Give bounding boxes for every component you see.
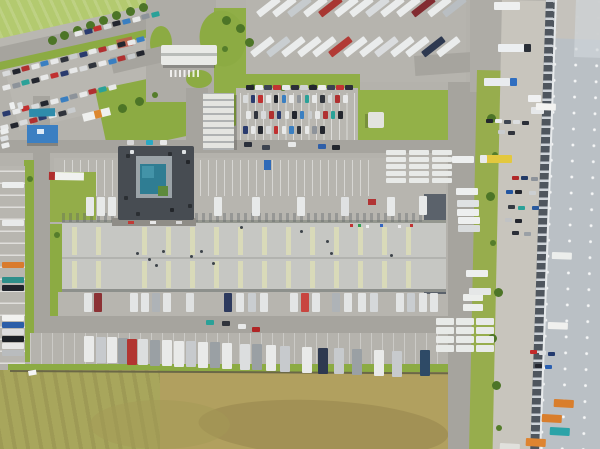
mid-carpark-row-a-item (320, 95, 325, 103)
south-dock-trailers-item (186, 293, 194, 312)
office-roof-units-item (130, 150, 134, 154)
trees-large-item (245, 38, 254, 47)
apron-cars-item (498, 130, 505, 134)
south-dock-trailers-item (130, 293, 138, 312)
trees-large-item (126, 7, 135, 16)
right-roof-glare (574, 0, 600, 58)
apron-cars-item (486, 119, 493, 123)
containers-north-item (386, 157, 406, 162)
skylight-strips-north-item (334, 227, 339, 255)
field-mottle (90, 400, 230, 449)
containers-south-pair-item (463, 294, 483, 301)
trees-large-item (494, 288, 503, 297)
skylight-strips-south-item (142, 261, 147, 288)
trees-small-item (54, 232, 60, 238)
mid-carpark-row-a-item (266, 95, 271, 103)
east-road-trailers-item (458, 225, 480, 232)
office-roof-garden (158, 186, 168, 196)
mid-carpark-row-b-item (269, 111, 274, 119)
mid-north-cars-item (246, 85, 254, 90)
warehouse-roof-seam (62, 257, 446, 259)
trees-large-item (48, 36, 57, 45)
south-dock-trailers-item (248, 293, 256, 312)
mid-north-cars-item (327, 85, 335, 90)
mid-carpark-row-b-item (308, 111, 313, 119)
mid-carpark-row-b-item (277, 111, 282, 119)
apron-cars-item (539, 351, 546, 355)
apron-trucks-item (498, 44, 524, 52)
apron-cars-item (508, 205, 515, 209)
skylight-strips-south-item (262, 261, 267, 288)
left-bay-trucks-item (2, 262, 24, 268)
south-trailer-row-item (186, 341, 196, 367)
skylight-strips-north-item (214, 227, 219, 255)
gatehouse-canopy (161, 45, 217, 65)
south-trailer-row-item (222, 343, 232, 369)
south-dock-trailers-item (396, 293, 404, 312)
south-dock-trailers-item (370, 293, 378, 312)
mid-north-cars-item (345, 85, 353, 90)
white-hut-shadow (365, 114, 368, 128)
skylight-strips-south-item (334, 261, 339, 288)
skylight-strips-north-item (96, 227, 101, 255)
roof-vents-item (390, 254, 393, 257)
pallet-dots-item (350, 224, 353, 227)
trees-small-item (27, 176, 33, 182)
east-docked-color-trucks-item (500, 443, 520, 449)
apron-truck-cabs-item (480, 155, 487, 163)
skylight-strips-north-item (382, 227, 387, 255)
mid-carpark-row-c-item (305, 126, 310, 134)
south-dock-trailers-item (224, 293, 232, 312)
apron-cars-item (505, 218, 512, 222)
south-dock-trailers-item (332, 293, 340, 312)
yard-road-vans-item (288, 142, 296, 147)
north-dock-trailers-item (97, 197, 105, 216)
aerial-photo-logistics-center (0, 0, 600, 449)
apron-cars-item (531, 177, 538, 181)
roof-vents-item (162, 250, 165, 253)
apron-truck-cabs-item (510, 78, 517, 86)
gatehouse-center-line (161, 53, 217, 56)
mid-carpark-row-b-item (323, 111, 328, 119)
apron-cars-item (545, 365, 552, 369)
apron-cars-item (518, 206, 525, 210)
containers-north-item (409, 164, 429, 169)
crosswalk (170, 70, 200, 77)
south-trailer-row-item (302, 347, 312, 373)
east-docked-color-trucks-item (554, 399, 574, 408)
skylight-strips-north-item (166, 227, 171, 255)
skylight-strips-north-item (72, 227, 77, 255)
south-trailer-row-item (420, 350, 430, 376)
yard-road-vans-item (262, 145, 270, 150)
containers-north-item (432, 178, 452, 183)
blue-canopy-shadow (27, 143, 58, 146)
mid-north-cars-item (336, 85, 344, 90)
trees-large-item (139, 3, 148, 12)
apron-cars-item (506, 190, 513, 194)
roof-vents-item (240, 226, 243, 229)
apron-cars-item (495, 119, 502, 123)
north-dock-trailers-item (108, 197, 116, 216)
mid-north-cars-item (255, 85, 263, 90)
mid-carpark-row-a-item (282, 95, 287, 103)
apron-cars-item (515, 219, 522, 223)
south-trailer-row-item (138, 339, 148, 365)
containers-south-item (476, 345, 494, 352)
skylight-strips-north-item (190, 227, 195, 255)
trees-large-item (486, 192, 495, 201)
containers-south-item (456, 336, 474, 343)
north-yard-bay-lines (64, 160, 376, 196)
south-dock-trailers-item (152, 293, 160, 312)
left-bay-trucks-item (2, 315, 24, 321)
skylight-strips-south-item (382, 261, 387, 288)
apron-trucks-item (484, 78, 510, 86)
south-trailer-row-item (266, 345, 276, 371)
roof-vents-item (330, 252, 333, 255)
apron-cars-item (515, 190, 522, 194)
mid-carpark-row-c-item (243, 126, 248, 134)
mid-carpark-row-a-item (258, 95, 263, 103)
north-dock-trailers-item (252, 197, 260, 216)
yard-road-vans-item (318, 144, 326, 149)
apron-trucks-item (494, 2, 520, 10)
mid-north-cars-item (291, 85, 299, 90)
skylight-strips-south-item (238, 261, 243, 288)
office-roof-units-item (168, 152, 172, 156)
containers-south-item (436, 336, 454, 343)
south-dock-trailers-item (260, 293, 268, 312)
containers-south-item (456, 345, 474, 352)
south-trailer-row-item (334, 348, 344, 374)
mid-carpark-row-c-item (251, 126, 256, 134)
south-trailer-row-item (252, 344, 262, 370)
trees-large-item (236, 24, 245, 33)
left-bay-trucks-item (2, 350, 24, 356)
west-road-truck-cab (49, 172, 55, 180)
containers-south-item (436, 318, 454, 325)
south-trailer-row-item (127, 339, 137, 365)
pallet-dots-item (398, 225, 401, 228)
south-trailer-row-item (374, 350, 384, 376)
south-dock-trailers-item (84, 293, 92, 312)
trees-large-item (60, 31, 69, 40)
apron-truck-cabs-item (524, 44, 531, 52)
east-docked-color-trucks-item (550, 427, 570, 436)
south-dock-trailers-item (94, 293, 102, 312)
south-trailer-row-item (107, 337, 117, 363)
carport-canopy (203, 93, 234, 150)
containers-north-item (432, 171, 452, 176)
office-north-units-item (146, 140, 153, 145)
south-dock-trailers-item (344, 293, 352, 312)
trees-large-item (135, 97, 144, 106)
south-trailer-row-item (210, 342, 220, 368)
containers-north-item (432, 164, 452, 169)
red-truck-north-dock (368, 199, 376, 205)
south-dock-trailers-item (358, 293, 366, 312)
south-dock-trailers-item (236, 293, 244, 312)
apron-cars-item (522, 121, 529, 125)
east-road-trailers-item (456, 188, 478, 195)
south-trailer-row-item (162, 340, 172, 366)
roof-vents-item (212, 262, 215, 265)
office-roof-units-item (182, 150, 186, 154)
office-roof-units-item (188, 204, 192, 208)
plaza-items-item (150, 221, 156, 224)
south-trailer-row-item (174, 341, 184, 367)
north-dock-trailers-item (214, 197, 222, 216)
east-docked-color-trucks-item (542, 414, 562, 423)
mid-carpark-row-b-item (315, 111, 320, 119)
containers-south-item (436, 327, 454, 334)
skylight-strips-north-item (238, 227, 243, 255)
apron-trucks-item (486, 155, 512, 163)
north-dock-trailers-item (419, 196, 427, 215)
skylight-strips-north-item (358, 227, 363, 255)
mid-north-cars-item (300, 85, 308, 90)
yard-road-vans-item (244, 142, 252, 147)
south-dock-trailers-item (163, 293, 171, 312)
containers-north-item (386, 164, 406, 169)
apron-cars-item (521, 176, 528, 180)
mid-carpark-row-b-item (254, 111, 259, 119)
skylight-strips-south-item (286, 261, 291, 288)
containers-north-item (386, 150, 406, 155)
south-dock-trailers-item (290, 293, 298, 312)
trees-large-item (222, 16, 231, 25)
containers-south-item (456, 327, 474, 334)
north-dock-trailers-item (387, 197, 395, 216)
trees-small-item (490, 240, 496, 246)
mid-north-cars-item (309, 85, 317, 90)
apron-vans-item (528, 95, 541, 102)
south-dock-trailers-item (430, 293, 438, 312)
mid-carpark-row-c-item (282, 126, 287, 134)
left-bay-trucks-item (2, 336, 24, 342)
south-trailer-row-item (318, 348, 328, 374)
roof-vents-item (200, 250, 203, 253)
apron-cars-item (529, 191, 536, 195)
blue-box-truck (264, 160, 271, 170)
skylight-strips-south-item (72, 261, 77, 288)
roof-vents-item (148, 258, 151, 261)
skylight-strips-south-item (358, 261, 363, 288)
pallet-dots-item (380, 224, 383, 227)
mid-carpark-row-c-item (266, 126, 271, 134)
apron-cars-item (535, 364, 542, 368)
containers-south-item (476, 327, 494, 334)
roof-vents-item (300, 230, 303, 233)
plaza-items-item (176, 221, 182, 224)
east-road-trailers-item (466, 270, 488, 277)
left-bay-trucks-item (2, 220, 24, 226)
skylight-strips-north-item (286, 227, 291, 255)
teal-truck (29, 108, 55, 117)
apron-cars-item (524, 232, 531, 236)
containers-south-item (476, 318, 494, 325)
mid-carpark-row-a-item (274, 95, 279, 103)
office-roof-units-item (186, 160, 190, 164)
skylight-strips-north-item (310, 227, 315, 255)
apron-cars-item (530, 350, 537, 354)
east-road-trailers-item (457, 200, 479, 207)
containers-south-pair-item (463, 304, 483, 311)
south-trailer-row-item (198, 342, 208, 368)
south-road-cars-item (238, 324, 246, 329)
mid-carpark-row-c-item (289, 126, 294, 134)
south-trailer-row-item (392, 351, 402, 377)
containers-north-item (409, 171, 429, 176)
office-roof-units-item (126, 154, 130, 158)
mid-carpark-row-b-item (331, 111, 336, 119)
east-road-trailers-item (458, 217, 480, 224)
containers-north-item (409, 157, 429, 162)
containers-north-item (409, 178, 429, 183)
office-north-units-item (160, 140, 167, 145)
north-dock-trailers-item (297, 197, 305, 216)
south-trailer-row-item (240, 344, 250, 370)
containers-north-item (386, 171, 406, 176)
mid-north-cars-item (282, 85, 290, 90)
warehouse-south-shadow (62, 289, 446, 292)
mid-carpark-row-a-item (312, 95, 317, 103)
apron-cars-item (513, 120, 520, 124)
grass-left-outer (24, 160, 34, 362)
mid-carpark-row-c-item (258, 126, 263, 134)
east-docked-trailers-item (548, 322, 568, 330)
skylight-strips-south-item (310, 261, 315, 288)
left-bay-trucks-item (2, 285, 24, 291)
trees-large-item (492, 381, 501, 390)
south-road-cars-item (222, 321, 230, 326)
warehouse-roof (62, 222, 446, 292)
trees-small-item (152, 92, 158, 98)
west-road-truck (54, 172, 84, 181)
mid-carpark-row-c-item (297, 126, 302, 134)
mid-carpark-row-a-item (251, 95, 256, 103)
north-dock-trailers-item (86, 197, 94, 216)
left-bay-trucks-item (2, 277, 24, 283)
left-bay-trucks-item (2, 343, 24, 349)
containers-south-item (436, 345, 454, 352)
south-dock-trailers-item (141, 293, 149, 312)
office-roof-units-item (136, 212, 140, 216)
pallet-dots-item (358, 224, 361, 227)
south-road-cars-item (252, 327, 260, 332)
mid-carpark-row-a-item (297, 95, 302, 103)
containers-south-item (476, 336, 494, 343)
mid-north-cars-item (264, 85, 272, 90)
gatehouse-shadow (163, 65, 215, 68)
blue-canopy-highlight (37, 129, 44, 134)
roof-vents-item (155, 264, 158, 267)
trees-large-item (118, 104, 127, 113)
containers-north-item (432, 157, 452, 162)
containers-south-item (456, 318, 474, 325)
office-roof-units-item (170, 208, 174, 212)
skylight-strips-south-item (96, 261, 101, 288)
skylight-strips-north-item (262, 227, 267, 255)
mid-carpark-row-c-item (312, 126, 317, 134)
south-dock-trailers-item (301, 293, 309, 312)
skylight-strips-south-item (406, 261, 411, 288)
skylight-strips-south-item (190, 261, 195, 288)
mid-carpark-row-a-item (289, 95, 294, 103)
east-docked-color-trucks-item (526, 438, 546, 447)
left-bay-trucks-item (2, 329, 24, 335)
south-road-cars-item (206, 320, 214, 325)
containers-north-item (409, 150, 429, 155)
south-trailer-row-item (84, 336, 94, 362)
containers-north-item (432, 150, 452, 155)
east-road-trailers-item (457, 209, 479, 216)
east-road-trailers-item (469, 288, 491, 295)
mid-carpark-row-a-item (243, 95, 248, 103)
pallet-dots-item (410, 224, 413, 227)
south-trailer-row-item (96, 337, 106, 363)
white-hut (368, 112, 384, 128)
mid-carpark-row-a-item (305, 95, 310, 103)
skylight-strips-north-item (406, 227, 411, 255)
containers-north-item (386, 178, 406, 183)
office-roof-units-item (124, 196, 128, 200)
mid-carpark-row-b-item (292, 111, 297, 119)
trees-large-item (112, 11, 121, 20)
apron-cars-item (512, 176, 519, 180)
trees-small-item (222, 46, 228, 52)
apron-cars-item (504, 120, 511, 124)
mid-carpark-row-b-item (338, 111, 343, 119)
mid-carpark-row-c-item (320, 126, 325, 134)
apron-cars-item (532, 206, 539, 210)
yard-road-vans-item (332, 145, 340, 150)
roof-vents-item (190, 255, 193, 258)
mid-carpark-row-b-item (285, 111, 290, 119)
mid-carpark-row-a-item (343, 95, 348, 103)
trees-small-item (496, 425, 502, 431)
mid-north-cars-item (273, 85, 281, 90)
south-dock-trailers-item (312, 293, 320, 312)
east-road-trailers-item (452, 156, 474, 163)
plaza-items-item (128, 221, 134, 224)
apron-cars-item (548, 352, 555, 356)
office-north-units-item (127, 140, 134, 145)
mid-carpark-row-b-item (246, 111, 251, 119)
left-bay-trucks-item (2, 322, 24, 328)
nw-drive-truck-tarp (94, 109, 103, 118)
carport-shadow (234, 95, 237, 150)
mid-carpark-row-b-item (300, 111, 305, 119)
office-atrium-highlight (142, 166, 154, 178)
mid-carpark-row-a-item (328, 95, 333, 103)
blue-canopy (27, 125, 58, 143)
left-bay-trucks-item (2, 182, 24, 188)
skylight-strips-south-item (214, 261, 219, 288)
south-dock-trailers-item (407, 293, 415, 312)
apron-cars-item (508, 131, 515, 135)
east-docked-trailers-item (536, 103, 556, 111)
mid-carpark-row-c-item (274, 126, 279, 134)
roof-vents-item (136, 252, 139, 255)
east-docked-trailers-item (552, 252, 572, 260)
skylight-strips-north-item (142, 227, 147, 255)
south-trailer-row-item (352, 349, 362, 375)
skylight-strips-south-item (166, 261, 171, 288)
south-dock-trailers-item (419, 293, 427, 312)
